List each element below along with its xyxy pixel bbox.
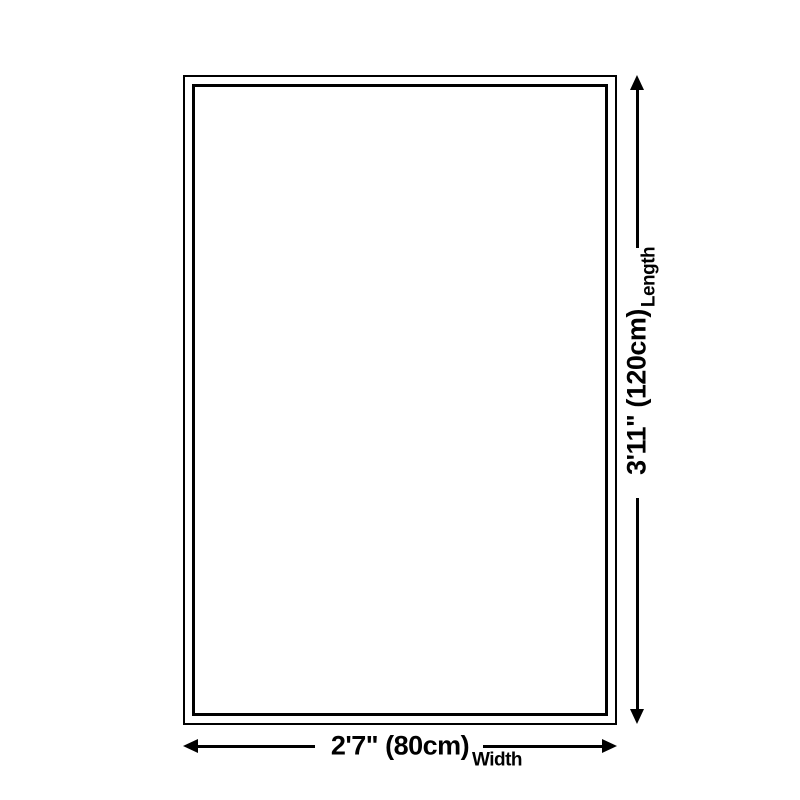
- width-value-label: 2'7" (80cm): [331, 733, 469, 760]
- rug-outline-inner: [192, 84, 608, 716]
- length-arrow-line-lower: [636, 498, 639, 709]
- arrow-right-head-icon: [602, 739, 617, 753]
- arrow-up-head-icon: [630, 75, 644, 90]
- width-sublabel: Width: [472, 751, 522, 770]
- length-value-label: 3'11" (120cm): [624, 309, 651, 475]
- width-arrow-line-left: [197, 745, 315, 748]
- arrow-down-head-icon: [630, 709, 644, 724]
- arrow-left-head-icon: [183, 739, 198, 753]
- rug-size-diagram: Length 3'11" (120cm) 2'7" (80cm) Width: [0, 0, 800, 800]
- length-sublabel: Length: [640, 247, 659, 307]
- length-arrow-line-upper: [636, 89, 639, 248]
- width-arrow-line-right: [483, 745, 602, 748]
- rug-outline-outer: [183, 75, 617, 725]
